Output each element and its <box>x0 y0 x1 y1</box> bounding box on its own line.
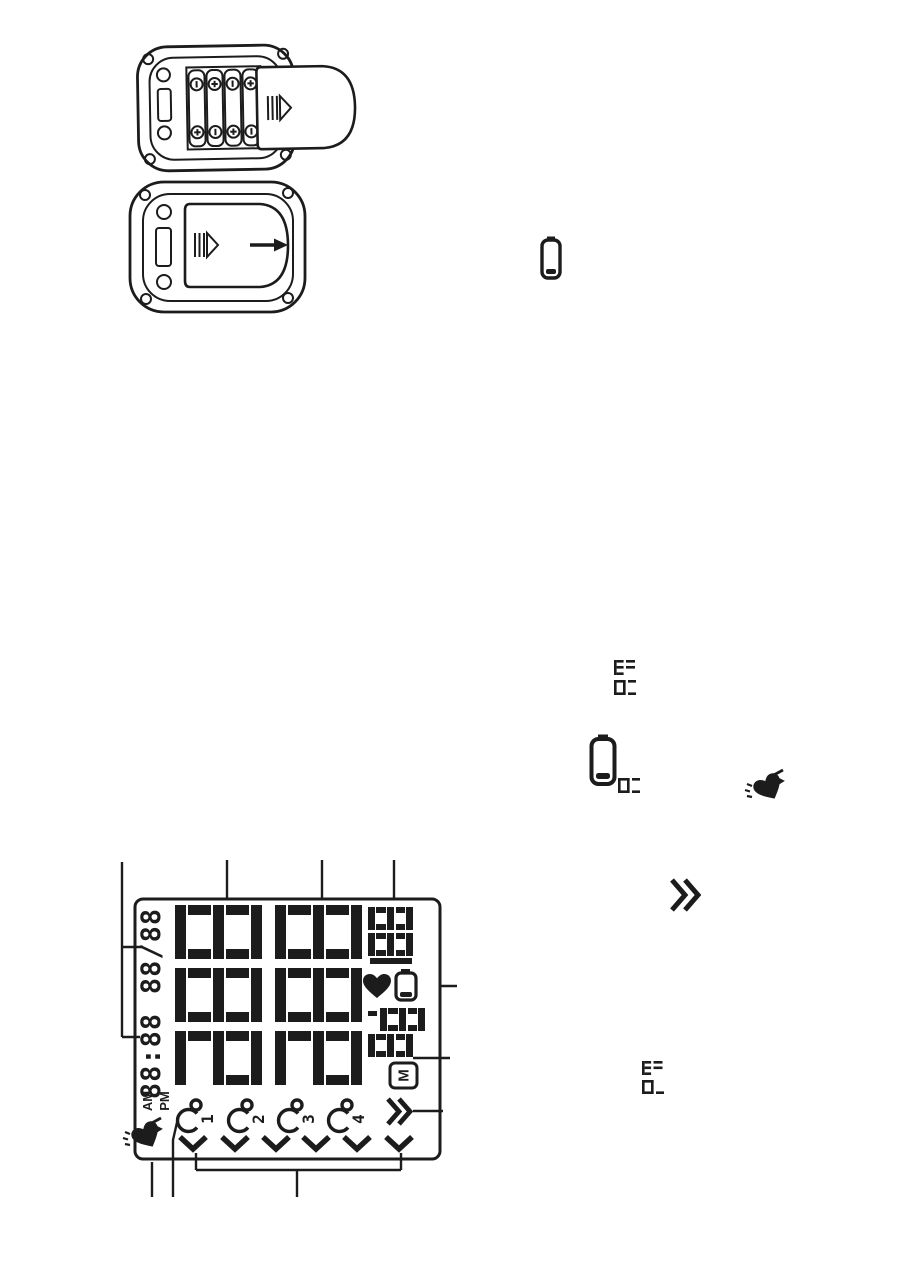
lcd-am-icon <box>614 660 644 696</box>
back-circle-detail <box>157 205 171 219</box>
lcd-memory-badge: M <box>390 1063 417 1088</box>
fast-forward-icon <box>388 1099 410 1124</box>
battery-low-icon <box>540 236 562 280</box>
battery-cell <box>188 70 205 146</box>
back-circle-detail <box>157 68 170 81</box>
figure-lcd-display-diagram: 88/88 88:88 AM PM <box>95 850 470 1205</box>
user-2-icon: 2 <box>229 1100 268 1132</box>
lcd-heart-icon <box>363 974 391 998</box>
screw-hole-icon <box>141 294 151 304</box>
screw-hole-icon <box>140 190 150 200</box>
lcd-a-icon <box>618 778 644 795</box>
battery-bay <box>186 66 261 149</box>
back-slot-detail <box>158 89 172 121</box>
user-1-icon: 1 <box>178 1100 217 1132</box>
lcd-pm-label: PM <box>157 1091 172 1111</box>
screw-hole-icon <box>283 188 293 198</box>
irregular-heartbeat-icon <box>743 768 789 814</box>
back-slot-detail <box>156 228 171 266</box>
back-circle-detail <box>157 275 171 289</box>
lcd-date-display: 88/88 <box>136 908 167 994</box>
manual-page: 88/88 88:88 AM PM <box>0 0 900 1274</box>
lcd-pm-icon <box>642 1061 670 1095</box>
battery-cover-sliding <box>256 66 355 150</box>
lcd-user-icons: 1 2 3 4 <box>178 1099 410 1132</box>
user-3-icon: 3 <box>279 1100 318 1132</box>
user-4-icon: 4 <box>329 1100 368 1132</box>
battery-cover-closed <box>185 204 288 287</box>
lcd-battery-icon <box>396 969 416 1000</box>
irregular-heartbeat-icon <box>123 1118 165 1153</box>
battery-low-icon <box>589 734 617 786</box>
lcd-pulse-digits <box>368 907 413 964</box>
figure-battery-cover-closed <box>110 176 345 326</box>
lcd-memory-digits <box>368 1008 425 1057</box>
fast-forward-icon <box>670 878 702 914</box>
svg-text:4: 4 <box>349 1114 368 1124</box>
battery-cell <box>224 70 241 146</box>
memory-badge-label: M <box>396 1069 413 1082</box>
figure-battery-compartment-open <box>120 22 378 174</box>
svg-text:1: 1 <box>198 1114 217 1124</box>
lcd-time-display: 88:88 <box>136 1013 167 1099</box>
lcd-large-digits <box>175 905 362 1085</box>
battery-cell <box>206 70 223 146</box>
svg-text:3: 3 <box>299 1114 318 1124</box>
back-circle-detail <box>158 126 171 139</box>
lcd-am-label: AM <box>140 1091 155 1111</box>
lcd-check-marks <box>180 1137 412 1149</box>
svg-text:2: 2 <box>249 1114 268 1124</box>
